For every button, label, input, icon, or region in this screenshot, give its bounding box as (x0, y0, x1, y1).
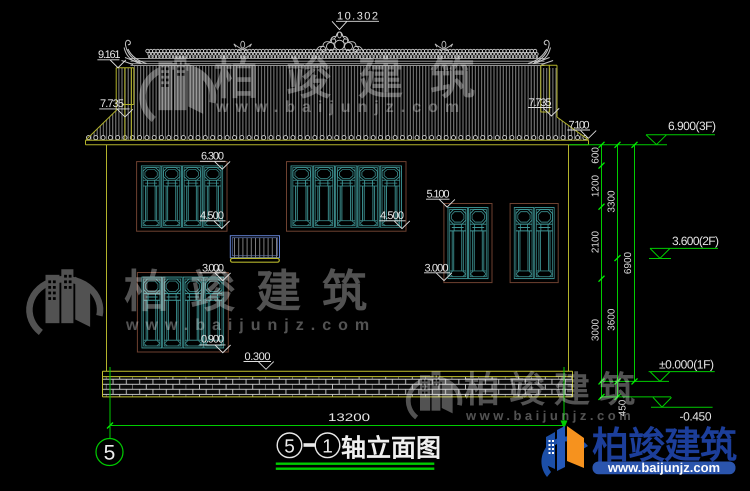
svg-text:4.500: 4.500 (200, 210, 224, 222)
svg-text:3.000: 3.000 (425, 262, 449, 274)
svg-text:6900: 6900 (623, 251, 634, 274)
svg-text:柏竣建筑: 柏竣建筑 (464, 369, 644, 410)
svg-text:0.900: 0.900 (201, 334, 224, 346)
svg-text:-0.450: -0.450 (680, 410, 712, 424)
svg-text:www.baijunjz.com: www.baijunjz.com (125, 317, 376, 334)
svg-text:www.baijunjz.com: www.baijunjz.com (215, 99, 466, 116)
svg-text:3.600(2F): 3.600(2F) (672, 234, 719, 248)
svg-text:1: 1 (322, 436, 333, 457)
svg-text:2100: 2100 (591, 230, 602, 253)
svg-text:轴立面图: 轴立面图 (341, 435, 441, 463)
svg-text:±0.000(1F): ±0.000(1F) (659, 358, 714, 372)
svg-text:600: 600 (591, 147, 602, 164)
svg-text:1200: 1200 (591, 174, 602, 197)
svg-text:3300: 3300 (607, 190, 618, 213)
svg-text:7.735: 7.735 (529, 97, 552, 109)
svg-text:5: 5 (284, 436, 295, 457)
svg-text:www.baijunjz.com: www.baijunjz.com (607, 460, 720, 475)
svg-text:3600: 3600 (607, 308, 618, 331)
svg-text:5.100: 5.100 (427, 189, 450, 201)
svg-text:柏竣建筑: 柏竣建筑 (214, 53, 502, 104)
svg-text:www.baijunjz.com: www.baijunjz.com (465, 408, 634, 423)
svg-text:6.900(3F): 6.900(3F) (668, 119, 716, 133)
svg-text:9.161: 9.161 (98, 49, 121, 61)
svg-text:4.500: 4.500 (380, 210, 404, 222)
svg-text:7.735: 7.735 (100, 98, 124, 110)
svg-text:3000: 3000 (591, 318, 602, 341)
svg-text:柏竣建筑: 柏竣建筑 (124, 266, 388, 317)
svg-text:0.300: 0.300 (245, 351, 271, 363)
svg-text:5: 5 (104, 442, 116, 465)
svg-text:7.100: 7.100 (569, 120, 590, 132)
svg-text:6.300: 6.300 (201, 151, 224, 163)
svg-text:13200: 13200 (328, 412, 370, 424)
